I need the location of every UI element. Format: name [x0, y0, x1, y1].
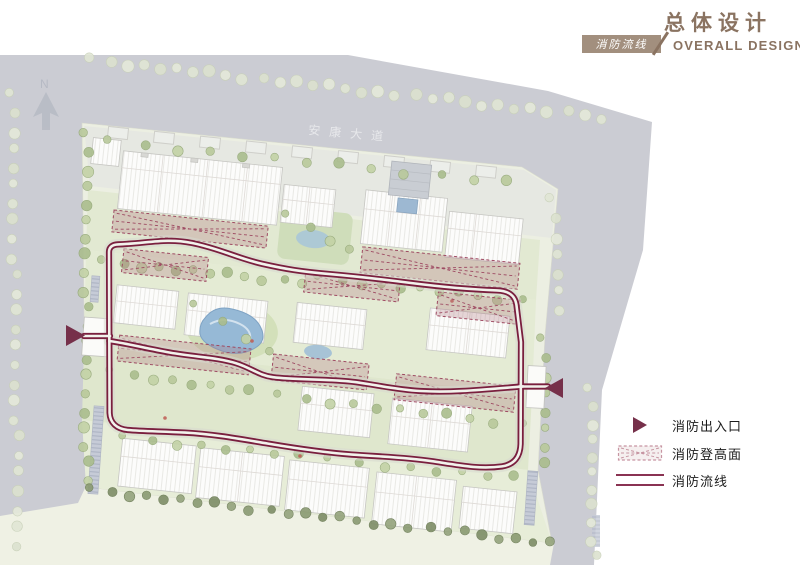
legend-label: 消防出入口 — [672, 416, 742, 435]
legend-item-ladder-area: 消防登高面 — [614, 442, 742, 464]
entrance-triangle-icon — [614, 416, 666, 434]
legend-label: 消防登高面 — [672, 444, 742, 463]
legend-item-route: 消防流线 — [614, 469, 728, 491]
page-subtitle: OVERALL DESIGN — [673, 38, 800, 53]
section-tab: 消防流线 — [582, 35, 661, 53]
page-title: 总体设计 — [664, 7, 794, 37]
svg-text:N: N — [40, 77, 49, 91]
section-tab-label: 消防流线 — [596, 36, 648, 52]
legend-item-entrance: 消防出入口 — [614, 414, 742, 436]
hatched-area-icon — [614, 444, 666, 462]
double-line-icon — [614, 474, 666, 486]
drawing-sheet: N 安康大道 总体设计 消防流线 OVERALL DESIGN 消防出入口 消防… — [0, 0, 800, 565]
legend-label: 消防流线 — [672, 471, 728, 490]
